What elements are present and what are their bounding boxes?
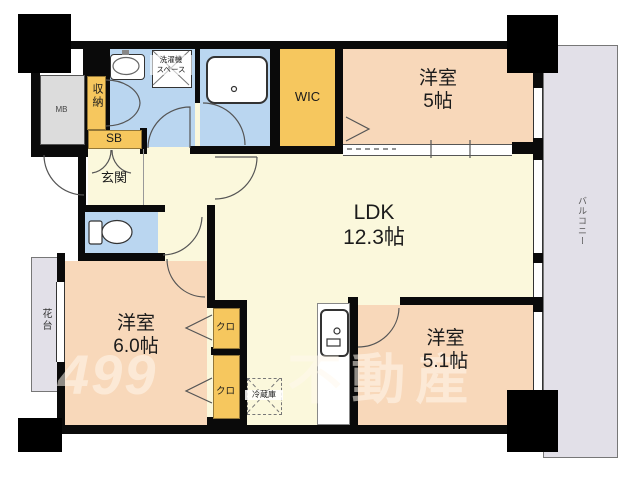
wall-wic-bedroom5 [335,49,343,147]
wall-toilet-bottom [78,253,165,261]
refrigerator-label: 冷蔵庫 [245,390,283,400]
washer-space-line2: スペース [156,65,185,74]
wall-toilet-top [78,205,165,212]
wall-bedroom51-top [400,297,533,305]
wall-top [71,41,507,49]
wall-bedroom60-left-top [57,253,65,282]
washbasin [110,54,145,80]
column-bottom-right [507,390,558,452]
wall-partition-end [512,142,533,154]
ldk-name: LDK [354,201,395,224]
entrance-label: 玄関 [86,170,142,186]
washer-space-label: 洗濯機 スペース [150,55,192,75]
wall-right-seg4 [533,297,543,312]
kitchen-sink [320,309,349,357]
wall-hall-ldk [207,205,215,303]
column-bottom-left [18,418,62,452]
washer-space-line1: 洗濯機 [160,55,183,64]
bedroom51-name: 洋室 [426,328,464,349]
wall-wet-row-bottom [190,146,343,154]
wall-bath-wic [270,49,280,147]
closet-upper-label: クロ [211,322,240,333]
wall-closet-top [207,300,247,308]
wall-bottom [31,425,543,434]
wall-right-seg1 [533,73,543,88]
bedroom60-size: 6.0帖 [65,336,207,359]
shoebox-label: SB [88,131,140,145]
window-bedroom5 [533,88,543,138]
wic-label: WIC [280,89,335,105]
toilet-room [85,212,158,253]
bedroom5-label: 洋室 5帖 [343,68,533,114]
bedroom60-label: 洋室 6.0帖 [65,313,207,359]
wall-bedroom60-left-bottom [57,362,65,425]
flower-stand-label: 花台 [37,308,51,332]
bathtub [206,56,268,104]
balcony-label: バルコニー [572,196,587,246]
ldk-size: 12.3帖 [215,225,533,250]
wall-wash-bath [195,49,200,103]
storage-label: 収納 [89,83,103,109]
wall-entrance-left [78,147,86,212]
bedroom5-size: 5帖 [343,91,533,114]
bedroom51-size: 5.1帖 [358,351,533,374]
sliding-partition [343,144,512,156]
wall-right-seg2 [533,138,543,160]
column-top-right [507,15,558,73]
ldk-label: LDK 12.3帖 [215,200,533,250]
window-ldk-lower [533,263,543,297]
bedroom60-name: 洋室 [117,313,155,334]
wall-right-seg3 [533,253,543,263]
bedroom5-name: 洋室 [419,68,457,89]
closet-lower-label: クロ [211,386,240,397]
meter-box-label: MB [40,105,83,115]
floorplan: 499 不動産 洋室 5帖 LDK 12.3帖 洋室 6.0帖 洋室 5.1帖 … [0,0,640,480]
entrance-step-line [143,149,144,205]
window-bedroom60 [56,282,65,362]
bedroom51-label: 洋室 5.1帖 [358,328,533,374]
window-bedroom51 [533,312,543,390]
window-ldk-upper [533,160,543,253]
column-top-left [18,14,71,73]
